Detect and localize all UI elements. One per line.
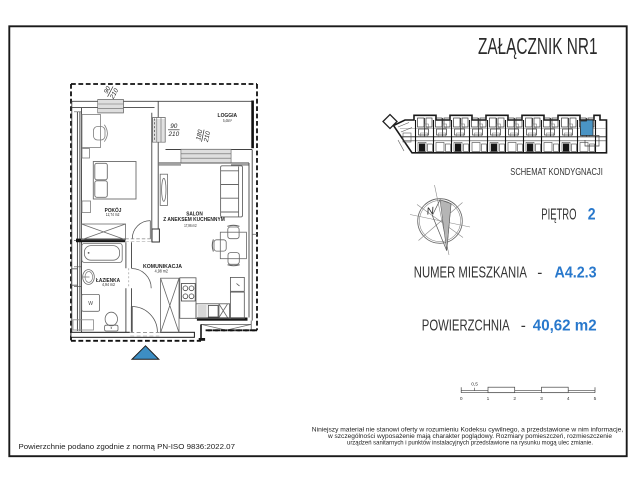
svg-text:12,74 m2: 12,74 m2 <box>106 212 120 217</box>
svg-text:2: 2 <box>588 206 596 224</box>
svg-text:A4.2.3: A4.2.3 <box>555 265 597 282</box>
svg-text:17,96 m2: 17,96 m2 <box>184 223 197 228</box>
svg-text:1: 1 <box>487 396 490 402</box>
svg-text:4,94 m2: 4,94 m2 <box>102 282 115 287</box>
svg-text:5,44m²: 5,44m² <box>223 118 232 123</box>
svg-text:-: - <box>521 318 526 335</box>
svg-text:3: 3 <box>540 396 543 402</box>
svg-text:0,5: 0,5 <box>471 382 478 388</box>
svg-text:0: 0 <box>460 396 463 402</box>
svg-text:90: 90 <box>170 123 178 130</box>
svg-text:4: 4 <box>567 396 570 402</box>
svg-text:210: 210 <box>167 131 179 138</box>
svg-text:Powierzchnie podano zgodnie z: Powierzchnie podano zgodnie z normą PN-I… <box>19 442 236 451</box>
svg-text:Z ANEKSEM KUCHENNYM: Z ANEKSEM KUCHENNYM <box>163 217 225 223</box>
svg-text:SCHEMAT KONDYGNACJI: SCHEMAT KONDYGNACJI <box>510 167 603 178</box>
svg-text:40,62 m2: 40,62 m2 <box>533 318 597 335</box>
svg-text:-: - <box>537 265 542 282</box>
svg-text:W: W <box>88 301 93 307</box>
svg-text:4,98 m2: 4,98 m2 <box>155 269 169 274</box>
svg-text:2: 2 <box>513 396 516 402</box>
svg-text:urządzeń sanitarnych i punktów: urządzeń sanitarnych i punktów instalacy… <box>347 440 593 447</box>
svg-text:ZAŁĄCZNIK NR1: ZAŁĄCZNIK NR1 <box>478 33 598 59</box>
svg-text:210: 210 <box>203 130 212 143</box>
svg-text:NUMER MIESZKANIA: NUMER MIESZKANIA <box>414 265 528 282</box>
svg-text:PIĘTRO: PIĘTRO <box>541 207 576 224</box>
svg-text:POWIERZCHNIA: POWIERZCHNIA <box>422 318 510 335</box>
svg-text:5: 5 <box>594 396 597 402</box>
